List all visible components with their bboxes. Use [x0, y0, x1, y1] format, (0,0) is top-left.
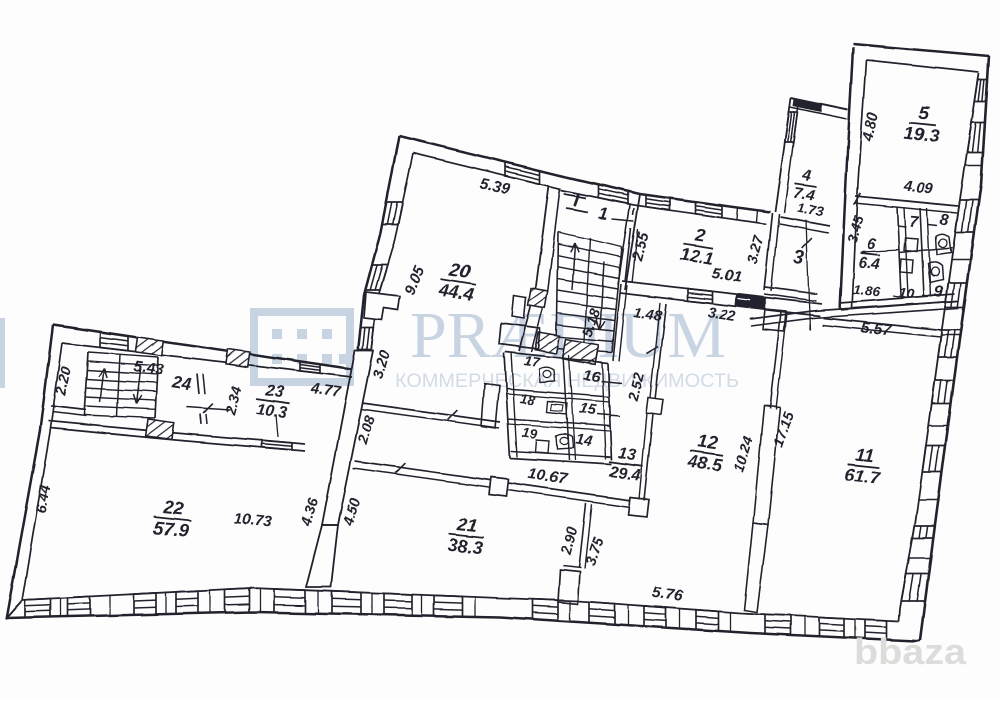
svg-text:19.3: 19.3: [903, 123, 940, 147]
svg-text:9: 9: [933, 284, 944, 302]
svg-text:15: 15: [578, 400, 598, 419]
svg-text:16: 16: [582, 367, 602, 386]
svg-text:bbaza: bbaza: [854, 631, 967, 672]
svg-text:20: 20: [447, 258, 472, 282]
svg-text:38.3: 38.3: [447, 535, 484, 559]
svg-text:4.09: 4.09: [902, 177, 934, 197]
svg-text:14: 14: [574, 431, 594, 450]
svg-text:24: 24: [170, 373, 193, 395]
svg-text:13: 13: [618, 445, 638, 464]
svg-text:12: 12: [697, 431, 720, 454]
svg-text:6.4: 6.4: [858, 254, 882, 273]
svg-text:18: 18: [519, 391, 536, 408]
svg-text:КОММЕРЧЕСКАЯ НЕДВИЖИМОСТЬ: КОММЕРЧЕСКАЯ НЕДВИЖИМОСТЬ: [395, 371, 739, 392]
svg-text:PRÆDIUM: PRÆDIUM: [410, 299, 726, 372]
svg-text:1.86: 1.86: [853, 282, 881, 300]
svg-text:22: 22: [162, 497, 185, 519]
svg-text:57.9: 57.9: [153, 518, 190, 542]
svg-text:61.7: 61.7: [844, 465, 882, 489]
svg-text:8: 8: [939, 212, 950, 230]
svg-text:23: 23: [264, 382, 285, 401]
svg-text:21: 21: [456, 514, 479, 536]
svg-text:10: 10: [898, 284, 915, 302]
svg-text:11: 11: [854, 444, 875, 466]
